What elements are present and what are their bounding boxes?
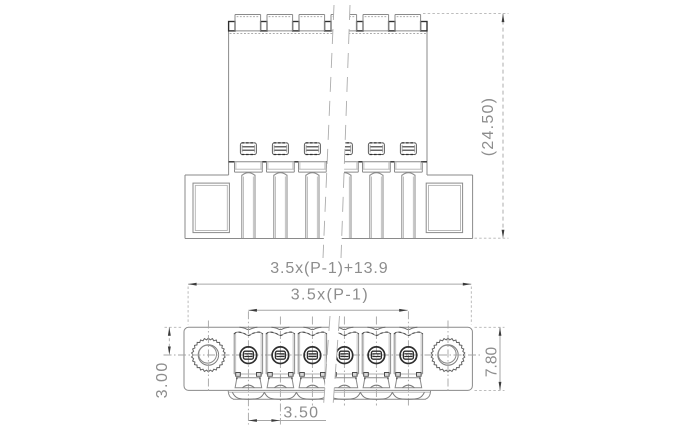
svg-text:(24.50): (24.50) [480,97,497,156]
svg-text:3.00: 3.00 [154,361,171,398]
svg-text:3.5x(P-1): 3.5x(P-1) [291,287,369,304]
svg-text:3.5x(P-1)+13.9: 3.5x(P-1)+13.9 [270,260,388,277]
svg-text:3.50: 3.50 [283,405,319,422]
svg-text:7.80: 7.80 [483,347,500,378]
